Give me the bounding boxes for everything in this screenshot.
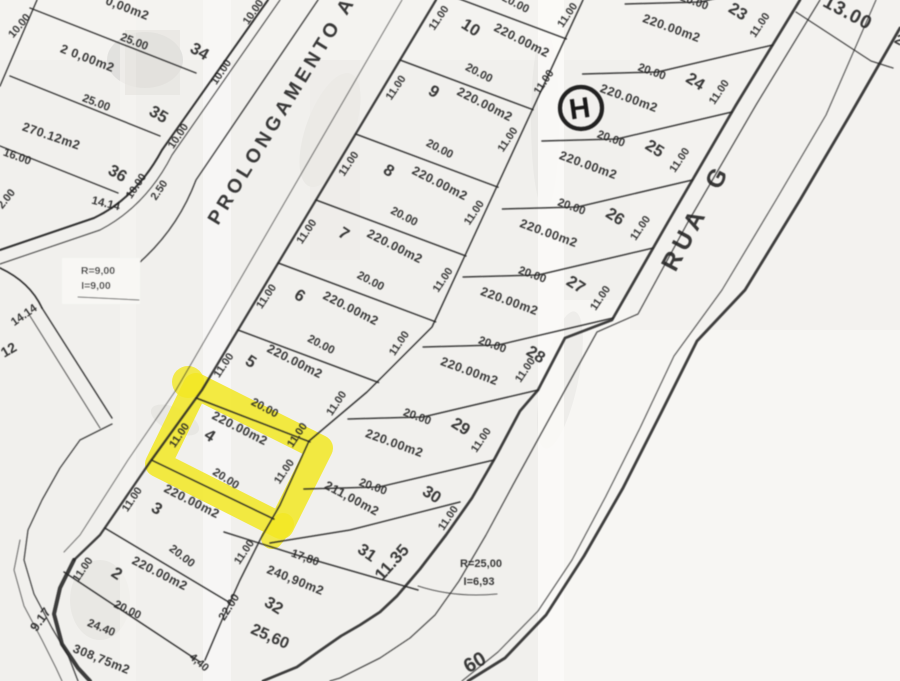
svg-text:R=25,00: R=25,00 <box>460 558 502 570</box>
svg-text:I=6,93: I=6,93 <box>464 576 495 588</box>
svg-text:H: H <box>567 92 592 127</box>
svg-text:R=9,00: R=9,00 <box>81 265 115 277</box>
svg-text:I=9,00: I=9,00 <box>81 280 111 292</box>
